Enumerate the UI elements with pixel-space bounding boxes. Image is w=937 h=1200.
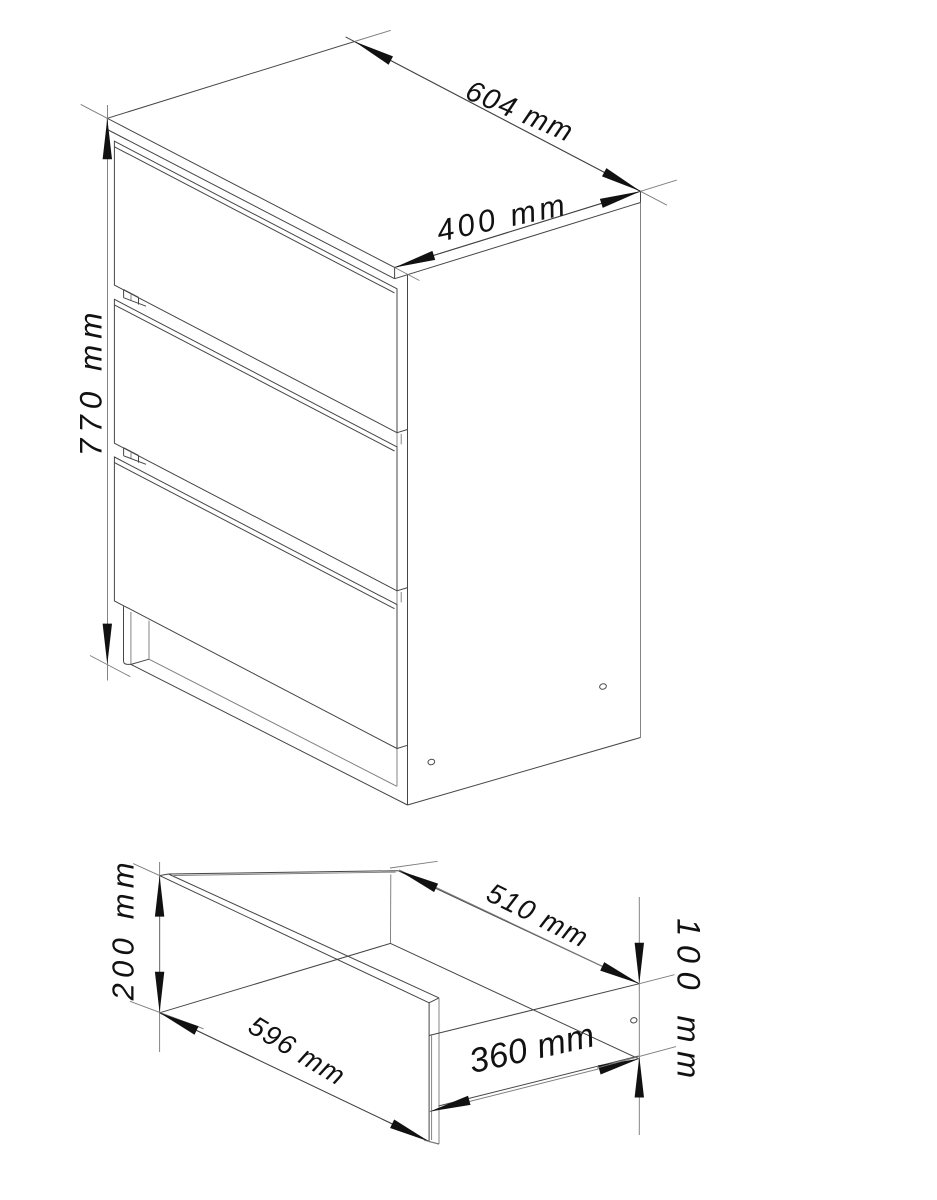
svg-text:100 mm: 100 mm [671, 918, 707, 1086]
svg-text:400 mm: 400 mm [433, 187, 571, 249]
svg-text:200 mm: 200 mm [106, 857, 141, 1001]
svg-text:770 mm: 770 mm [73, 307, 109, 457]
svg-text:596 mm: 596 mm [243, 1010, 351, 1092]
svg-text:510 mm: 510 mm [482, 877, 594, 954]
svg-text:604 mm: 604 mm [461, 75, 579, 149]
